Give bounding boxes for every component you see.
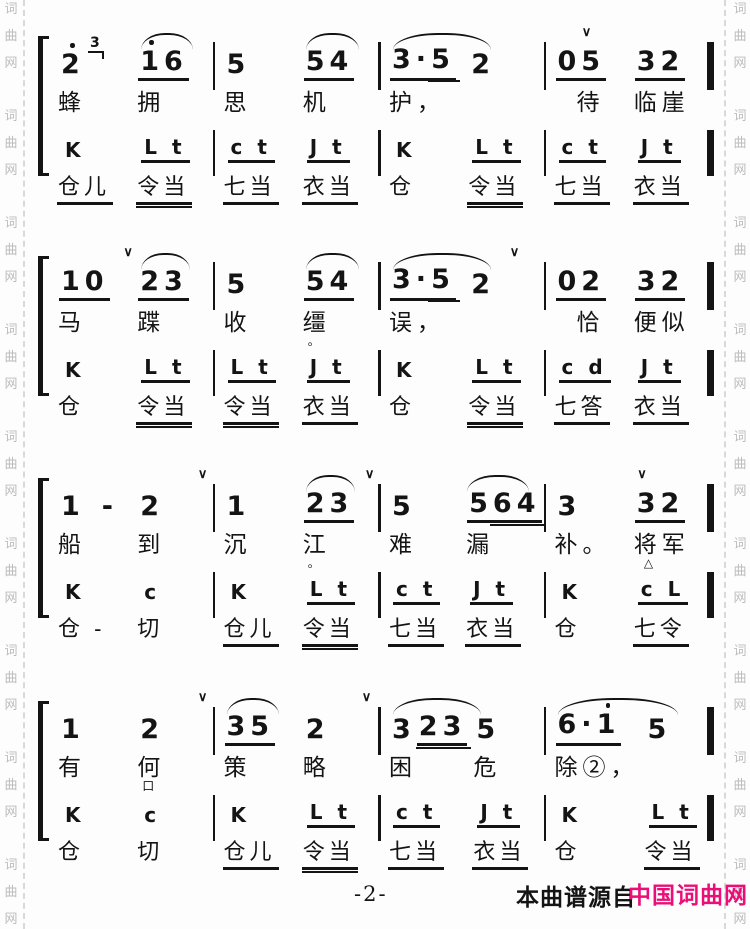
notes-beat: 2 [131,693,210,749]
percussion-cell: L t [297,570,376,614]
lyric-cell: 沉 [218,526,297,570]
barline-percussion-segment [213,572,216,618]
barline-percussion-segment [213,130,216,176]
note-digit: 6 [164,48,188,75]
percussion-letters: c t [559,137,606,163]
lyric-cell [462,84,541,128]
system-bracket [36,470,49,656]
lyric-text: 待 [577,89,605,115]
percussion-syllable: 仓 [388,395,418,422]
syllable-cell: 衣当 [297,172,376,214]
lyric-text: 蹀 [137,309,165,335]
grace-note: 3 [88,36,102,53]
watermark-text: 词 [733,858,746,871]
note-digit: 0 [85,268,109,295]
percussion-letters: J t [638,137,681,163]
percussion-cell: J t [297,128,376,172]
percussion-cell: L t [462,128,541,172]
watermark-text: 词 [733,2,746,15]
note-group: 54 [304,48,355,81]
note-digit: 6 [558,711,582,738]
syllable-cell: 仓儿 [52,172,131,214]
percussion-cell: c [131,793,210,837]
note-digit: 5 [227,51,251,78]
lyric-text: 护， [389,89,445,115]
percussion-syllable: 仓 [57,395,87,422]
lyric-cell: 思 [218,84,297,128]
percussion-syllable: 令当 [467,175,523,205]
watermark-text: 曲 [4,778,17,791]
barline [211,28,218,214]
note-digit: 1 [597,711,621,738]
syllable-cell: 仓 [383,172,462,214]
percussion-syllable: 令当 [302,840,358,870]
syllable-cell: 七当 [218,172,297,214]
watermark-text: 词 [733,109,746,122]
note-group: 3 [390,716,417,746]
music-system: ∨12有何口Kc仓切∨352策略KL t仓儿令当3235困危c tJ t七当衣当… [36,693,714,879]
lyric-cell: 策 [218,749,297,793]
lyric-text: 临崖 [634,89,690,115]
barline [542,28,549,214]
notes-beat: 35 [218,693,297,749]
note-digit: 2 [661,48,685,75]
watermark-text: 词 [733,323,746,336]
percussion-cell: L t [639,793,708,837]
percussion-cell: c [131,570,210,614]
note-digit: 5 [469,490,493,517]
measure: 2316蜂拥KL t仓儿令当 [52,28,211,214]
notes-beat: 5 [218,28,297,84]
note-digit: 1 [227,493,251,520]
watermark-text: 词 [4,216,17,229]
note-group: 3·5 [390,46,456,81]
percussion-letters: J t [477,802,520,828]
note-digit: 2 [140,716,164,743]
note-digit: 3 [637,48,661,75]
lyric-cell: 有 [52,749,131,793]
watermark-text: 网 [733,698,746,711]
percussion-syllable: 七当 [223,175,279,205]
notes-beat: 05 [549,28,628,84]
dotted-note-dot: · [581,711,596,738]
percussion-letters: L t [649,802,697,828]
note-digit: 3 [558,493,582,520]
percussion-cell: J t [467,793,541,837]
watermark-text: 词 [4,644,17,657]
watermark-text: 曲 [733,350,746,363]
note-digit: 5 [392,493,416,520]
watermark-text: 词 [4,109,17,122]
percussion-syllable: 衣当 [302,175,358,205]
syllable-cell: 切 [131,837,210,879]
note-group: 2 [469,51,496,81]
watermark-text: 曲 [733,564,746,577]
percussion-cell: L t [131,128,210,172]
percussion-letters: J t [470,579,513,605]
syllable-cell: 七答 [549,392,628,434]
lyric-cell: 机 [297,84,376,128]
lyric-sub-mark: 口 [142,780,154,792]
measures-row: ∨1023马蹀KL t仓令当554收缰。L tJ t令当衣当∨3·52误，KL … [52,248,714,434]
percussion-cell: c t [383,793,467,837]
barline [542,248,549,434]
lyric-cell: 漏 [460,526,541,570]
syllable-cell: 令当 [462,392,541,434]
watermark-text: 网 [4,270,17,283]
watermark-text: 网 [733,484,746,497]
barline [542,693,549,879]
watermark-text: 网 [733,805,746,818]
lyric-cell: 补。 [549,526,628,570]
percussion-letters: K [62,140,89,163]
syllable-cell: 令当 [218,392,297,434]
note-group: 16 [138,48,189,81]
percussion-cell: K [52,793,131,837]
note-digit: 5 [227,271,251,298]
percussion-letters: J t [307,357,350,383]
syllable-cell: 衣当 [467,837,541,879]
note-digit: 2 [140,268,164,295]
lyric-sub-mark: △ [644,557,653,569]
note-group: 32 [635,490,686,523]
watermark-text: 曲 [733,29,746,42]
syllable-cell: 令当 [297,614,376,656]
brand-link[interactable]: 中国词曲网 [628,876,748,910]
lyric-cell [639,749,708,793]
end-barline [707,28,714,214]
watermark-text: 词 [4,430,17,443]
note-digit: 0 [558,268,582,295]
note-digit: 2 [471,271,495,298]
syllable-cell: 衣当 [460,614,541,656]
percussion-syllable: 七当 [388,840,444,870]
note-digit: 3 [392,266,416,293]
watermark-text: 曲 [4,243,17,256]
note-group: 54 [304,268,355,301]
note-group: 02 [556,268,607,301]
watermark-text: 网 [733,377,746,390]
watermark-text: 曲 [4,457,17,470]
note-digit: 5 [648,716,672,743]
notes-beat: 54 [297,28,376,84]
watermark-text: 网 [733,912,746,925]
note-group: 1 [225,493,252,523]
percussion-cell: K [383,348,462,392]
watermark-text: 词 [733,751,746,764]
lyric-cell: 恰 [549,304,628,348]
percussion-syllable: 仓 [554,617,584,644]
note-group: 2 [138,716,165,746]
watermark-text: 词 [4,751,17,764]
barline-percussion-segment [378,795,381,841]
measure: ∨123沉江。KL t仓儿令当 [218,470,377,656]
note-digit: 3 [392,46,416,73]
source-label: 本曲谱源自 [516,878,636,912]
note-group: 23 [138,268,189,301]
note-digit: - [102,493,113,520]
percussion-syllable: 仓 [388,175,418,202]
lyric-cell: 蹀 [131,304,210,348]
syllable-cell: 七令 [628,614,707,656]
lyric-text: 江。 [303,531,331,557]
note-group: 1 [59,493,86,523]
note-digit: 4 [330,268,354,295]
percussion-syllable: 切 [136,617,166,644]
percussion-cell: J t [628,348,707,392]
note-digit: 2 [581,268,605,295]
percussion-cell: K [52,128,131,172]
notes-beat: 2 [297,693,376,749]
percussion-letters: L t [141,357,189,383]
barline-notes-segment [707,484,714,532]
note-digit: 5 [581,48,605,75]
lyric-cell: 护， [383,84,462,128]
percussion-letters: L t [141,137,189,163]
watermark-column-right: 词曲网词曲网词曲网词曲网词曲网词曲网词曲网词曲网词曲网 [731,2,749,929]
percussion-cell: J t [628,128,707,172]
note-group: 23 [304,490,355,523]
notes-beat: 16 [131,28,210,84]
percussion-cell: L t [131,348,210,392]
barline-percussion-segment [707,350,714,396]
percussion-syllable: 令当 [136,395,192,425]
lyric-text: 将军△ [634,531,690,557]
watermark-text: 网 [4,805,17,818]
barline [211,693,218,879]
barline-notes-segment [378,42,381,90]
percussion-syllable: 仓儿 [223,617,279,647]
page-number: -2- [354,882,388,906]
lyric-cell [462,304,541,348]
barline [376,693,383,879]
note-group: 5 [646,716,673,746]
note-digit: 5 [431,266,455,293]
barline-notes-segment [544,262,547,310]
percussion-cell: K [52,348,131,392]
barline [542,470,549,656]
percussion-letters: c t [228,137,275,163]
syllable-cell: 令当 [131,172,210,214]
barline [376,28,383,214]
lyric-text: 机 [303,89,331,115]
lyric-text: 困 [389,754,417,780]
note-digit: 1 [61,493,85,520]
percussion-syllable: 令当 [467,395,523,425]
watermark-text: 网 [733,591,746,604]
note-group: 23 [417,713,468,746]
percussion-syllable: 衣当 [472,840,528,870]
watermark-text: 网 [4,56,17,69]
watermark-dashed-line-right [724,0,726,929]
percussion-letters: K [393,140,420,163]
note-group: 10 [59,268,110,301]
notes-beat: 564 [460,470,541,526]
percussion-letters: c L [638,579,689,605]
percussion-syllable: 七令 [633,617,689,647]
lyric-text: 拥 [137,89,165,115]
syllable-cell: 仓 [549,614,628,656]
percussion-letters: J t [638,357,681,383]
watermark-text: 网 [4,484,17,497]
syllable-cell: 仓儿 [218,614,297,656]
notes-beat: 5 [383,470,460,526]
percussion-syllable: 衣当 [633,395,689,425]
note-group: 5 [474,716,501,746]
note-digit: 3 [330,490,354,517]
watermark-text: 网 [4,591,17,604]
measure: 5564难漏c tJ t七当衣当 [383,470,542,656]
syllable-cell: 令当 [462,172,541,214]
percussion-syllable: 仓 [554,840,584,867]
lyric-cell: 待 [549,84,628,128]
end-barline [707,693,714,879]
syllable-cell: 仓儿 [218,837,297,879]
lyric-cell: 危 [467,749,541,793]
lyric-text: 缰。 [303,309,331,335]
barline-percussion-segment [707,795,714,841]
notes-beat: 02 [549,248,628,304]
measure: ∨1023马蹀KL t仓令当 [52,248,211,434]
note-group: 5 [390,493,417,523]
barline-percussion-segment [707,130,714,176]
notes-beat: 23 [131,248,210,304]
measure: ∨1-2船到Kc仓 -切 [52,470,211,656]
watermark-text: 曲 [733,457,746,470]
watermark-text: 词 [733,644,746,657]
syllable-cell: 仓 [52,392,131,434]
percussion-letters: K [228,805,255,828]
watermark-dashed-line-left [23,0,25,929]
lyric-cell: 马 [52,304,131,348]
note-digit: 6 [493,490,517,517]
notes-beat: 23 [52,28,131,84]
barline-notes-segment [378,707,381,755]
notes-beat: 1 [52,693,131,749]
notes-beat: 6·1 [549,693,639,749]
measures-row: ∨12有何口Kc仓切∨352策略KL t仓儿令当3235困危c tJ t七当衣当… [52,693,714,879]
note-digit: 3 [637,268,661,295]
note-group: 5 [225,271,252,301]
barline-notes-segment [213,262,216,310]
syllable-cell: 七当 [383,614,460,656]
lyric-text: 除②， [555,754,639,780]
lyric-text: 恰 [577,309,605,335]
note-digit: 2 [419,713,443,740]
measure: ∨0532待临崖c tJ t七当衣当 [549,28,708,214]
percussion-letters: c [141,805,164,828]
watermark-text: 网 [4,698,17,711]
measure: ∨3·52误，KL t仓令当 [383,248,542,434]
lyric-cell: 便似 [628,304,707,348]
watermark-text: 曲 [4,564,17,577]
barline-percussion-segment [213,795,216,841]
note-digit: 4 [330,48,354,75]
notes-beat: 3·5 [383,28,462,84]
percussion-cell: K [218,793,297,837]
watermark-text: 曲 [4,136,17,149]
percussion-cell: K [52,570,131,614]
measure: 6·15除②，KL t仓令当 [549,693,708,879]
measures-row: ∨1-2船到Kc仓 -切∨123沉江。KL t仓儿令当5564难漏c tJ t七… [52,470,714,656]
music-system: 2316蜂拥KL t仓儿令当554思机c tJ t七当衣当3·52护，KL t仓… [36,28,714,214]
notes-beat: 54 [297,248,376,304]
percussion-syllable: 衣当 [633,175,689,205]
note-digit: 3 [392,716,416,743]
lyric-cell: 难 [383,526,460,570]
percussion-syllable: 令当 [644,840,700,870]
note-digit: 3 [443,713,467,740]
note-digit: 2 [140,493,164,520]
syllable-cell: 仓 [549,837,639,879]
measure: ∨332补。将军△Kc L仓七令 [549,470,708,656]
system-bracket [36,248,49,434]
watermark-text: 词 [4,858,17,871]
percussion-letters: L t [472,137,520,163]
percussion-cell: J t [460,570,541,614]
lyric-text: 蜂 [58,89,86,115]
percussion-letters: K [393,360,420,383]
lyric-cell: 除②， [549,749,639,793]
percussion-cell: K [383,128,462,172]
note-group: 05 [556,48,607,81]
measures-row: 2316蜂拥KL t仓儿令当554思机c tJ t七当衣当3·52护，KL t仓… [52,28,714,214]
syllable-cell: 七当 [383,837,467,879]
barline-notes-segment [213,707,216,755]
note-digit: 2 [471,51,495,78]
watermark-text: 网 [733,270,746,283]
barline-percussion-segment [544,795,547,841]
percussion-syllable: 令当 [223,395,279,425]
lyric-text: 漏 [466,531,494,557]
percussion-letters: K [62,805,89,828]
watermark-text: 曲 [4,29,17,42]
lyric-sub-mark: 。 [308,557,320,569]
lyric-cell: 临崖 [628,84,707,128]
percussion-cell: L t [218,348,297,392]
syllable-cell: 七当 [549,172,628,214]
watermark-text: 曲 [733,136,746,149]
lyric-cell: 到 [131,526,210,570]
lyric-text: 马 [58,309,86,335]
lyric-cell: 蜂 [52,84,131,128]
barline [376,248,383,434]
measure: ∨12有何口Kc仓切 [52,693,211,879]
percussion-letters: K [62,582,89,605]
barline-percussion-segment [707,572,714,618]
percussion-letters: K [559,582,586,605]
lyric-cell: 略 [297,749,376,793]
syllable-cell: 衣当 [628,172,707,214]
barline-percussion-segment [378,130,381,176]
note-group: 32 [635,268,686,301]
notes-beat: 5 [218,248,297,304]
barline-notes-segment [544,707,547,755]
note-digit: 4 [517,490,541,517]
note-group: 35 [225,713,276,746]
barline-notes-segment [707,707,714,755]
percussion-syllable: 七答 [554,395,610,425]
lyric-cell: 困 [383,749,467,793]
syllable-cell: 切 [131,614,210,656]
notes-beat: 1- [52,470,131,526]
percussion-letters: c d [559,357,611,383]
syllable-cell: 令当 [297,837,376,879]
percussion-syllable: 仓儿 [223,840,279,870]
notes-beat: 32 [628,248,707,304]
music-system: ∨1-2船到Kc仓 -切∨123沉江。KL t仓儿令当5564难漏c tJ t七… [36,470,714,656]
watermark-text: 网 [733,163,746,176]
